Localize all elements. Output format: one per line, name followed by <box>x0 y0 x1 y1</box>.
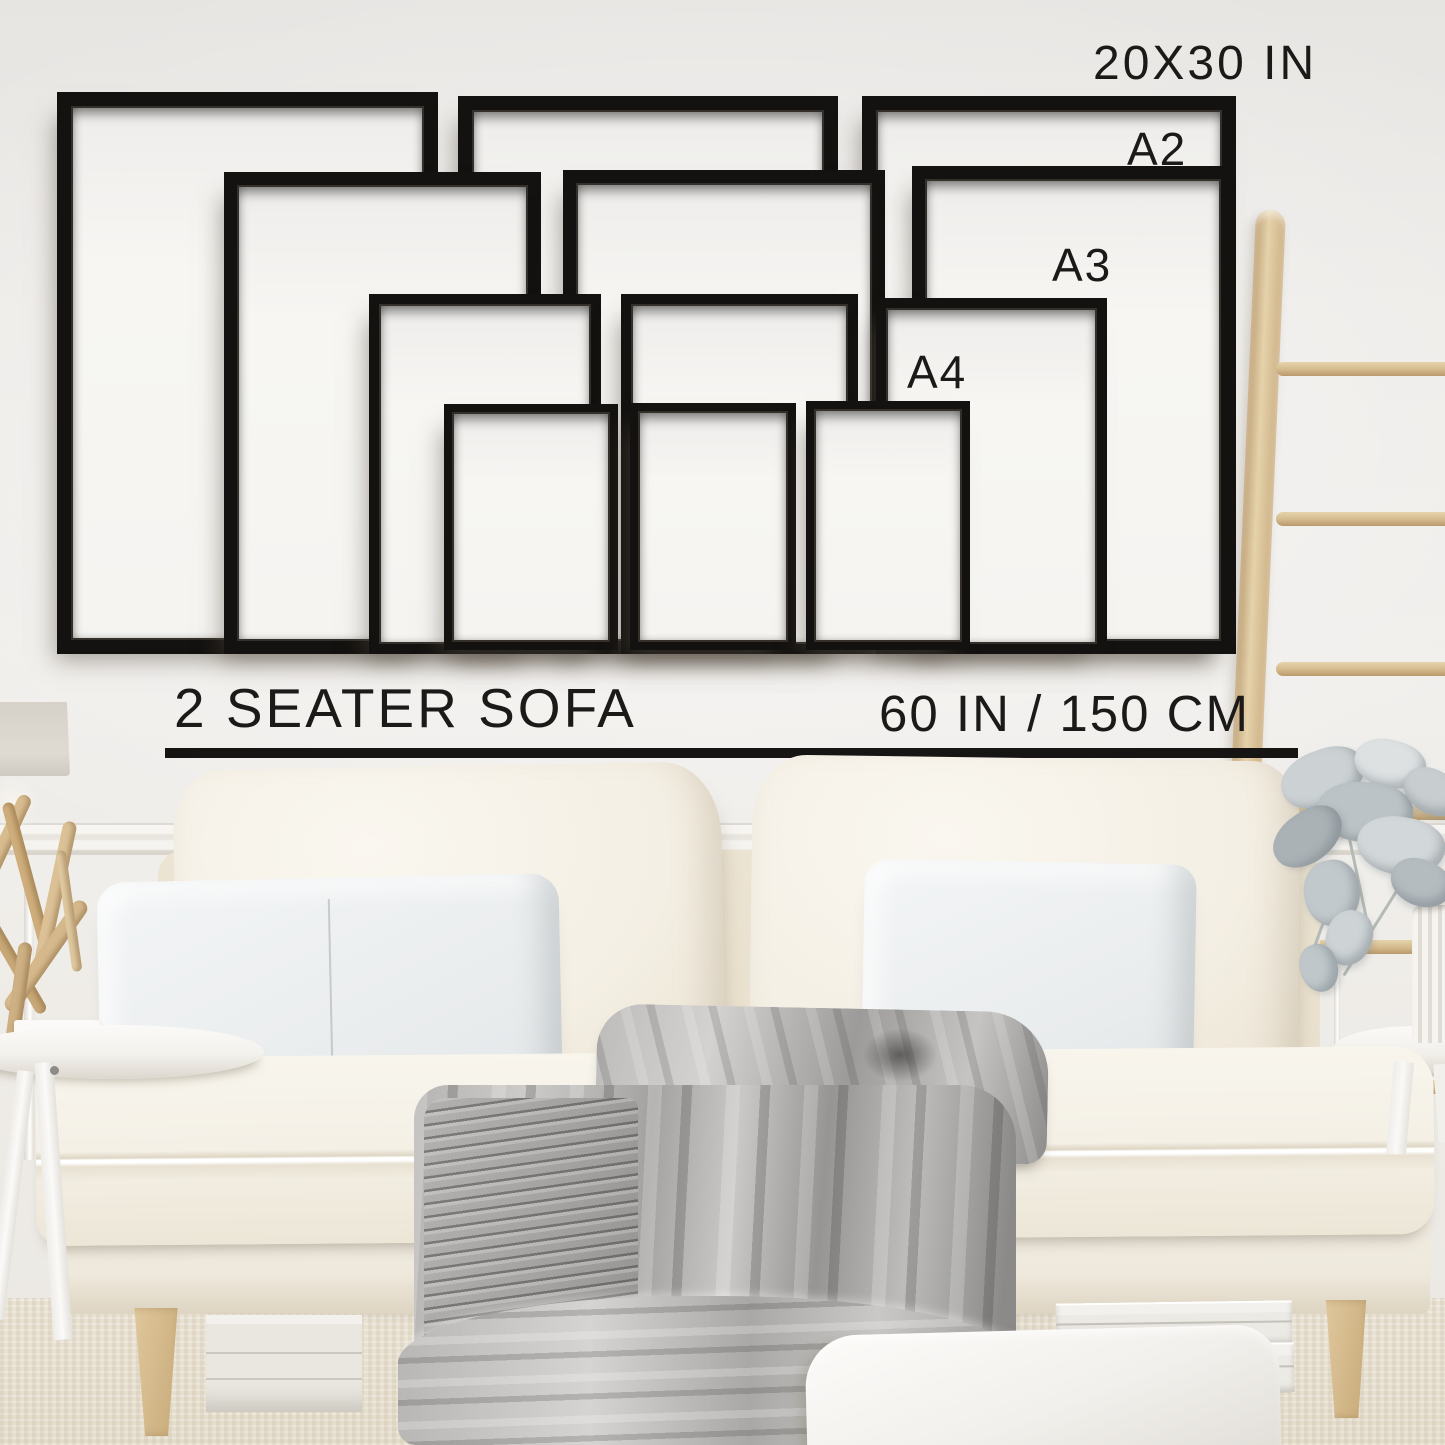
ladder-rung <box>1276 362 1445 376</box>
driftwood-decor <box>0 790 108 1042</box>
size-label-a4: A4 <box>907 345 967 399</box>
frame-a4-right <box>806 401 970 650</box>
under-sofa-box <box>206 1315 362 1412</box>
ladder-rung <box>1276 662 1445 676</box>
sofa-width-underline <box>165 748 1298 758</box>
sofa-width-label: 60 IN / 150 CM <box>860 684 1250 743</box>
table-leg-screw <box>50 1066 59 1075</box>
box-lid-seam <box>1056 1320 1292 1325</box>
eucalyptus-plant <box>1262 742 1445 1002</box>
ladder-rung <box>1276 512 1445 526</box>
size-label-20x30: 20X30 IN <box>1093 36 1317 91</box>
table-lamp-shade <box>0 702 70 776</box>
frame-mat <box>640 413 786 640</box>
frame-mat <box>454 414 608 640</box>
frame-a4-middle <box>630 403 796 650</box>
size-label-a3: A3 <box>1052 238 1112 292</box>
sofa-label: 2 SEATER SOFA <box>174 676 637 740</box>
frame-a4-left <box>444 404 618 650</box>
size-label-a2: A2 <box>1127 122 1187 176</box>
knit-blanket-crease <box>848 1018 952 1092</box>
frame-mat <box>816 411 960 640</box>
size-guide-mockup: 20X30 IN A2 A3 A4 2 SEATER SOFA 60 IN / … <box>0 0 1445 1445</box>
jute-basket <box>0 1128 76 1324</box>
floor-cushion <box>804 1324 1281 1445</box>
